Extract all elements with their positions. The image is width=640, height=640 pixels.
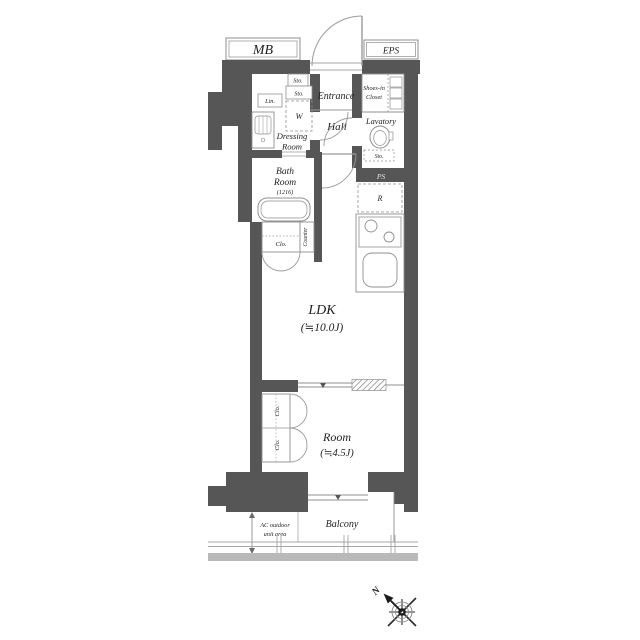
entrance-label: Entrance <box>317 91 355 102</box>
bedroom-area: Clo. Clo. Room (≒4.5J) <box>262 394 354 462</box>
meter-box: MB <box>226 38 300 60</box>
bath-label-1: Bath <box>276 167 294 177</box>
wall-room-bottom-step <box>394 490 418 504</box>
ldk-area: LDK (≒10.0J) <box>301 303 344 334</box>
closet1-folddoor-top <box>290 394 307 411</box>
linen-label: Lin. <box>264 98 275 105</box>
bath-closet-folddoor-right <box>281 252 300 271</box>
bath-closet-folddoor-left <box>262 252 281 271</box>
lavatory-storage-label: Sto. <box>375 154 384 160</box>
wall-left-column <box>222 60 252 126</box>
wall-room-bottom-right <box>368 472 418 492</box>
kitchen-area: R <box>356 184 404 292</box>
lavatory-area: Lavatory Sto. <box>362 112 404 161</box>
shoes-in-closet: Shoes-in Closet <box>362 74 404 112</box>
toilet-handle <box>389 132 393 140</box>
floor-plan-page: MB EPS PS Entrance <box>0 0 640 640</box>
shoes-closet-outline <box>362 74 404 112</box>
balcony-label: Balcony <box>326 519 359 530</box>
wall-entrance-lavatory-lower <box>352 146 362 168</box>
washer-label: W <box>295 111 303 121</box>
dressing-label-2: Room <box>281 142 302 152</box>
slider-pocket-hatch <box>352 380 386 391</box>
wall-counter-side <box>314 222 322 262</box>
wall-left-lower <box>250 222 262 472</box>
closet2-folddoor-top <box>290 428 307 445</box>
wall-left-bump <box>208 92 222 150</box>
shoes-closet-label-1: Shoes-in <box>363 85 385 92</box>
toilet-icon <box>370 126 393 148</box>
entrance-storage-label: Sto. <box>293 78 302 85</box>
ldk-door-arc <box>322 154 356 188</box>
bath-closet-label: Clo. <box>275 241 286 248</box>
wall-bottom-left-bump <box>208 486 226 506</box>
balcony-window <box>308 495 368 500</box>
fridge-label: R <box>377 194 383 203</box>
hall-area: Hall <box>320 112 356 188</box>
dressing-label-1: Dressing <box>276 131 308 141</box>
rail-band <box>208 553 418 561</box>
ac-area-label-2: unit area <box>264 531 287 538</box>
ps-label: PS <box>376 172 386 181</box>
wall-bottom-left-column <box>226 472 308 512</box>
closet2-folddoor-bottom <box>290 445 307 462</box>
room-label: Room <box>322 430 351 444</box>
eps-label: EPS <box>382 47 400 57</box>
wall-top-right <box>362 60 420 74</box>
room-closet-label-lower: Clo. <box>274 439 281 450</box>
washbasin-icon <box>252 112 274 148</box>
bath-size-label: (1216) <box>277 189 294 196</box>
ldk-size-label: (≒10.0J) <box>301 322 344 334</box>
mb-label: MB <box>252 43 274 58</box>
compass-north-shaft <box>391 601 402 612</box>
counter-label: Counter <box>303 227 309 247</box>
balcony-railing <box>208 535 418 561</box>
eps-box: EPS <box>364 40 418 59</box>
entrance-door-arc <box>312 16 362 66</box>
wall-ldk-room-divider <box>250 380 298 392</box>
wall-right <box>404 72 418 512</box>
lavatory-label: Lavatory <box>365 117 396 126</box>
room-closet-label-upper: Clo. <box>274 405 281 416</box>
dressing-room-area: Lin. Sto. W Dressing Room <box>252 86 312 152</box>
toilet-bowl <box>370 126 390 148</box>
ldk-room-slider <box>298 380 404 391</box>
ldk-label: LDK <box>307 303 336 318</box>
balcony-window-tick <box>335 495 341 500</box>
dressing-storage-label: Sto. <box>294 91 303 98</box>
wall-bath-top-left <box>252 150 282 158</box>
bath-label-2: Room <box>273 178 296 188</box>
room-size-label: (≒4.5J) <box>320 448 354 459</box>
wall-left-upper <box>238 126 252 222</box>
ac-area-label-1: AC outdoor <box>259 522 290 529</box>
ac-arrow-up <box>249 512 255 518</box>
closet1-folddoor-bottom <box>290 411 307 428</box>
compass-north-label: N <box>369 584 383 598</box>
wall-bath-corridor <box>314 152 322 222</box>
bath-room-area: Bath Room (1216) Clo. Counter <box>258 152 314 271</box>
compass-icon: N <box>369 584 416 626</box>
floor-plan: MB EPS PS Entrance <box>0 0 640 640</box>
wall-top-left <box>246 60 310 74</box>
shoes-closet-label-2: Closet <box>366 94 382 101</box>
bathtub-icon <box>258 198 310 221</box>
